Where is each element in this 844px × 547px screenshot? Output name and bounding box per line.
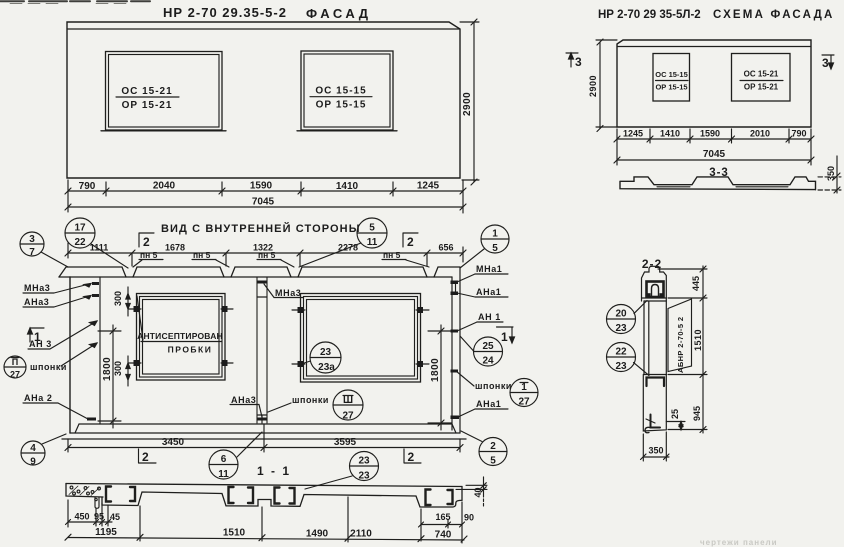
svg-text:3595: 3595 [334, 437, 357, 448]
svg-text:1: 1 [492, 229, 498, 240]
svg-text:ОС 15-15: ОС 15-15 [655, 70, 688, 79]
svg-text:1510: 1510 [693, 329, 703, 351]
svg-text:11: 11 [367, 237, 378, 248]
svg-text:АНа3: АНа3 [231, 395, 256, 405]
svg-text:НР 2-70 29 35-5Л-2: НР 2-70 29 35-5Л-2 [598, 9, 701, 21]
svg-text:3: 3 [575, 55, 582, 69]
svg-text:ОР 15-21: ОР 15-21 [122, 100, 173, 111]
svg-text:2: 2 [408, 450, 415, 464]
svg-text:23: 23 [615, 361, 627, 372]
svg-text:5: 5 [369, 223, 375, 234]
svg-text:1410: 1410 [660, 129, 680, 139]
svg-text:27: 27 [10, 370, 20, 380]
svg-text:1800: 1800 [430, 358, 441, 382]
svg-text:АНа3: АНа3 [24, 297, 49, 307]
svg-text:1245: 1245 [623, 129, 643, 139]
svg-text:1590: 1590 [700, 129, 720, 139]
svg-text:25: 25 [670, 409, 680, 419]
svg-text:1590: 1590 [250, 181, 273, 192]
svg-text:АБНР 2-70-5 2: АБНР 2-70-5 2 [676, 317, 685, 373]
svg-text:790: 790 [79, 181, 96, 192]
svg-text:чертежи панели: чертежи панели [700, 538, 778, 547]
svg-text:АНа 2: АНа 2 [24, 393, 53, 403]
svg-text:45: 45 [110, 512, 120, 522]
svg-text:ПРОБКИ: ПРОБКИ [168, 345, 213, 355]
svg-text:АН 3: АН 3 [29, 339, 52, 349]
svg-text:6: 6 [221, 454, 227, 465]
svg-text:350: 350 [648, 446, 663, 456]
svg-text:ОС 15-15: ОС 15-15 [315, 86, 366, 97]
svg-text:1678: 1678 [165, 243, 185, 253]
svg-text:5: 5 [492, 243, 498, 254]
svg-text:17: 17 [74, 223, 86, 234]
svg-text:7045: 7045 [703, 149, 726, 160]
svg-text:7: 7 [29, 247, 35, 258]
svg-text:2010: 2010 [750, 129, 770, 139]
svg-text:1510: 1510 [223, 528, 246, 539]
svg-text:23: 23 [320, 347, 332, 358]
svg-text:ОС 15-21: ОС 15-21 [744, 70, 779, 79]
svg-text:11: 11 [218, 469, 229, 480]
svg-text:2: 2 [143, 235, 150, 249]
svg-text:1111: 1111 [90, 243, 109, 253]
svg-text:1245: 1245 [417, 181, 440, 192]
svg-text:27: 27 [518, 397, 530, 408]
svg-text:шпонки: шпонки [475, 381, 512, 391]
svg-text:шпонки: шпонки [292, 395, 329, 405]
svg-text:22: 22 [615, 347, 627, 358]
svg-text:ФАСАД: ФАСАД [306, 6, 372, 21]
svg-text:740: 740 [435, 530, 452, 541]
svg-text:П: П [12, 357, 18, 367]
svg-text:2110: 2110 [350, 529, 372, 540]
svg-text:1410: 1410 [336, 181, 359, 192]
svg-text:2900: 2900 [462, 92, 473, 116]
svg-text:3450: 3450 [162, 437, 185, 448]
svg-text:165: 165 [435, 512, 450, 522]
svg-text:23: 23 [615, 323, 627, 334]
svg-text:22: 22 [74, 237, 86, 248]
svg-text:90: 90 [464, 513, 474, 523]
svg-text:МНа3: МНа3 [275, 288, 301, 298]
svg-text:300: 300 [113, 361, 123, 376]
svg-text:23а: 23а [318, 362, 335, 373]
svg-text:450: 450 [74, 512, 89, 522]
svg-text:656: 656 [438, 243, 453, 253]
svg-text:ОР 15-15: ОР 15-15 [316, 100, 367, 111]
svg-text:27: 27 [342, 411, 354, 422]
svg-text:1: 1 [521, 382, 527, 393]
svg-text:790: 790 [791, 129, 806, 139]
svg-text:АНа1: АНа1 [476, 399, 501, 409]
svg-text:1: 1 [501, 330, 508, 344]
svg-text:24: 24 [482, 356, 494, 367]
svg-text:пн 5: пн 5 [383, 250, 401, 260]
svg-text:2040: 2040 [153, 181, 176, 192]
svg-text:ВИД С ВНУТРЕННЕЙ СТОРОНЫ: ВИД С ВНУТРЕННЕЙ СТОРОНЫ [161, 222, 361, 235]
svg-text:ОР 15-21: ОР 15-21 [744, 83, 779, 92]
svg-text:АНа1: АНа1 [476, 287, 501, 297]
svg-text:350: 350 [826, 166, 836, 181]
svg-text:1490: 1490 [306, 529, 329, 540]
svg-text:НР 2-70 29.35-5-2: НР 2-70 29.35-5-2 [163, 5, 287, 20]
svg-text:445: 445 [691, 276, 701, 291]
svg-text:АН 1: АН 1 [478, 312, 501, 322]
svg-text:2: 2 [407, 235, 414, 249]
svg-text:40: 40 [473, 487, 483, 497]
svg-text:5: 5 [490, 456, 496, 467]
svg-text:2278: 2278 [338, 243, 358, 253]
svg-text:пн 5: пн 5 [140, 250, 158, 260]
svg-text:3: 3 [29, 234, 35, 245]
svg-text:ОР 15-15: ОР 15-15 [655, 83, 687, 92]
svg-text:МНа3: МНа3 [24, 283, 50, 293]
svg-text:23: 23 [358, 456, 370, 467]
svg-text:СХЕМА ФАСАДА: СХЕМА ФАСАДА [713, 9, 834, 21]
svg-text:Ш: Ш [343, 395, 353, 406]
svg-text:23: 23 [358, 471, 370, 482]
svg-text:25: 25 [482, 341, 494, 352]
svg-text:МНа1: МНа1 [476, 264, 502, 274]
svg-text:пн 5: пн 5 [193, 250, 211, 260]
svg-text:шпонки: шпонки [30, 362, 67, 372]
svg-text:3: 3 [822, 56, 829, 70]
svg-text:95: 95 [94, 512, 104, 522]
svg-text:2: 2 [490, 441, 496, 452]
svg-text:1800: 1800 [102, 357, 113, 381]
svg-text:300: 300 [113, 291, 123, 306]
svg-text:9: 9 [30, 457, 36, 468]
svg-text:7045: 7045 [252, 197, 275, 208]
svg-text:20: 20 [615, 309, 627, 320]
svg-text:АНТИСЕПТИРОВАН: АНТИСЕПТИРОВАН [137, 331, 223, 341]
svg-text:ОС 15-21: ОС 15-21 [121, 86, 172, 97]
svg-text:1195: 1195 [95, 527, 117, 538]
svg-text:2900: 2900 [588, 75, 598, 97]
svg-text:945: 945 [692, 406, 702, 421]
svg-text:1 - 1: 1 - 1 [257, 464, 291, 478]
svg-text:пн 5: пн 5 [258, 250, 276, 260]
svg-text:4: 4 [30, 443, 36, 454]
svg-text:2: 2 [142, 450, 149, 464]
